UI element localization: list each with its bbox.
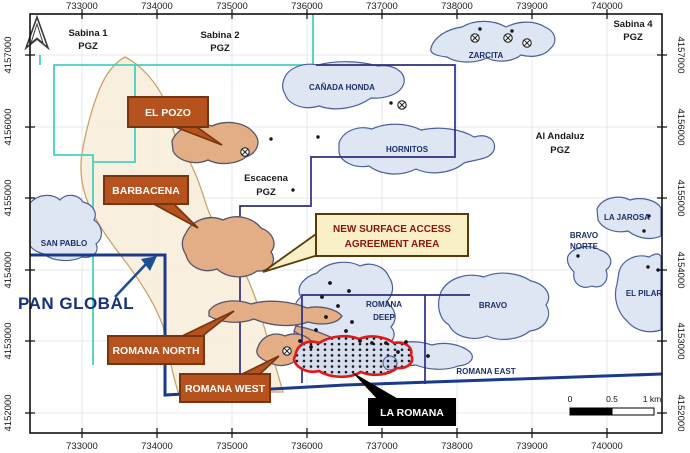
scale-zero: 0 <box>568 394 573 404</box>
easting-label: 735000 <box>216 441 248 452</box>
callout-el-pozo-label: EL POZO <box>145 107 191 119</box>
easting-label: 736000 <box>291 1 323 12</box>
northing-label: 4155000 <box>3 180 14 217</box>
blob-san-pablo <box>30 195 101 260</box>
northing-label: 4154000 <box>675 252 686 289</box>
label-la-jarosa: LA JAROSA <box>604 213 650 222</box>
northing-label: 4156000 <box>3 109 14 146</box>
label-san-pablo: SAN PABLO <box>41 239 88 248</box>
easting-label: 737000 <box>366 1 398 12</box>
callout-romana-west-label: ROMANA WEST <box>185 383 266 395</box>
axis-labels-top: 733000 734000 735000 736000 737000 73800… <box>66 1 623 12</box>
scale-one-km: 1 km <box>643 394 661 404</box>
agreement-line1: NEW SURFACE ACCESS <box>333 224 451 235</box>
northing-label: 4157000 <box>3 37 14 74</box>
callout-romana-north-label: ROMANA NORTH <box>112 345 199 357</box>
callout-la-romana: LA ROMANA <box>352 372 456 426</box>
label-sabina-4: Sabina 4 <box>613 19 653 30</box>
northing-label: 4153000 <box>675 323 686 360</box>
label-zarcita: ZARCITA <box>469 51 504 60</box>
easting-label: 733000 <box>66 1 98 12</box>
easting-label: 739000 <box>516 1 548 12</box>
label-escacena-zone: PGZ <box>256 187 276 198</box>
label-romana-deep-2: DEEP <box>373 313 395 322</box>
northing-label: 4157000 <box>675 37 686 74</box>
axis-labels-bottom: 733000 734000 735000 736000 737000 73800… <box>66 441 623 452</box>
scale-half: 0.5 <box>606 394 618 404</box>
label-al-andaluz: Al Andaluz <box>536 131 585 142</box>
easting-label: 737000 <box>366 441 398 452</box>
label-sabina-1: Sabina 1 <box>68 28 108 39</box>
easting-label: 738000 <box>441 1 473 12</box>
label-bravo: BRAVO <box>479 301 507 310</box>
northing-label: 4152000 <box>675 395 686 432</box>
label-romana-east: ROMANA EAST <box>456 367 515 376</box>
easting-label: 740000 <box>591 1 623 12</box>
northing-label: 4152000 <box>3 395 14 432</box>
label-bravo-norte-2: NORTE <box>570 242 599 251</box>
label-hornitos: HORNITOS <box>386 145 429 154</box>
label-romana-deep-1: ROMANA <box>366 300 402 309</box>
la-romana-red-outline <box>294 336 412 377</box>
axis-labels-left: 4157000 4156000 4155000 4154000 4153000 … <box>3 37 14 432</box>
blob-bravo-norte <box>567 247 610 288</box>
easting-label: 733000 <box>66 441 98 452</box>
exploration-map: ZARCITA CAÑADA HONDA HORNITOS SAN PABLO … <box>0 0 690 453</box>
label-sabina-1-zone: PGZ <box>78 41 98 52</box>
scale-bar: 0 0.5 1 km <box>568 394 662 415</box>
label-bravo-norte-1: BRAVO <box>570 231 598 240</box>
callout-barbacena-label: BARBACENA <box>112 185 180 197</box>
label-sabina-2-zone: PGZ <box>210 43 230 54</box>
easting-label: 738000 <box>441 441 473 452</box>
callout-la-romana-label: LA ROMANA <box>380 407 444 419</box>
agreement-annotation: NEW SURFACE ACCESS AGREEMENT AREA <box>263 214 468 272</box>
label-al-andaluz-zone: PGZ <box>550 145 570 156</box>
map-canvas: ZARCITA CAÑADA HONDA HORNITOS SAN PABLO … <box>0 0 690 453</box>
label-sabina-2: Sabina 2 <box>200 30 239 41</box>
northing-label: 4154000 <box>3 252 14 289</box>
la-romana-drill-zone <box>294 336 412 377</box>
easting-label: 734000 <box>141 441 173 452</box>
label-sabina-4-zone: PGZ <box>623 32 643 43</box>
northing-label: 4153000 <box>3 323 14 360</box>
easting-label: 740000 <box>591 441 623 452</box>
label-canada-honda: CAÑADA HONDA <box>309 83 375 92</box>
easting-label: 739000 <box>516 441 548 452</box>
label-escacena: Escacena <box>244 173 289 184</box>
label-el-pilar: EL PILAR <box>626 289 663 298</box>
axis-labels-right: 4157000 4156000 4155000 4154000 4153000 … <box>675 37 686 432</box>
easting-label: 736000 <box>291 441 323 452</box>
easting-label: 734000 <box>141 1 173 12</box>
agreement-line2: AGREEMENT AREA <box>345 239 440 250</box>
northing-label: 4155000 <box>675 180 686 217</box>
northing-label: 4156000 <box>675 109 686 146</box>
easting-label: 735000 <box>216 1 248 12</box>
